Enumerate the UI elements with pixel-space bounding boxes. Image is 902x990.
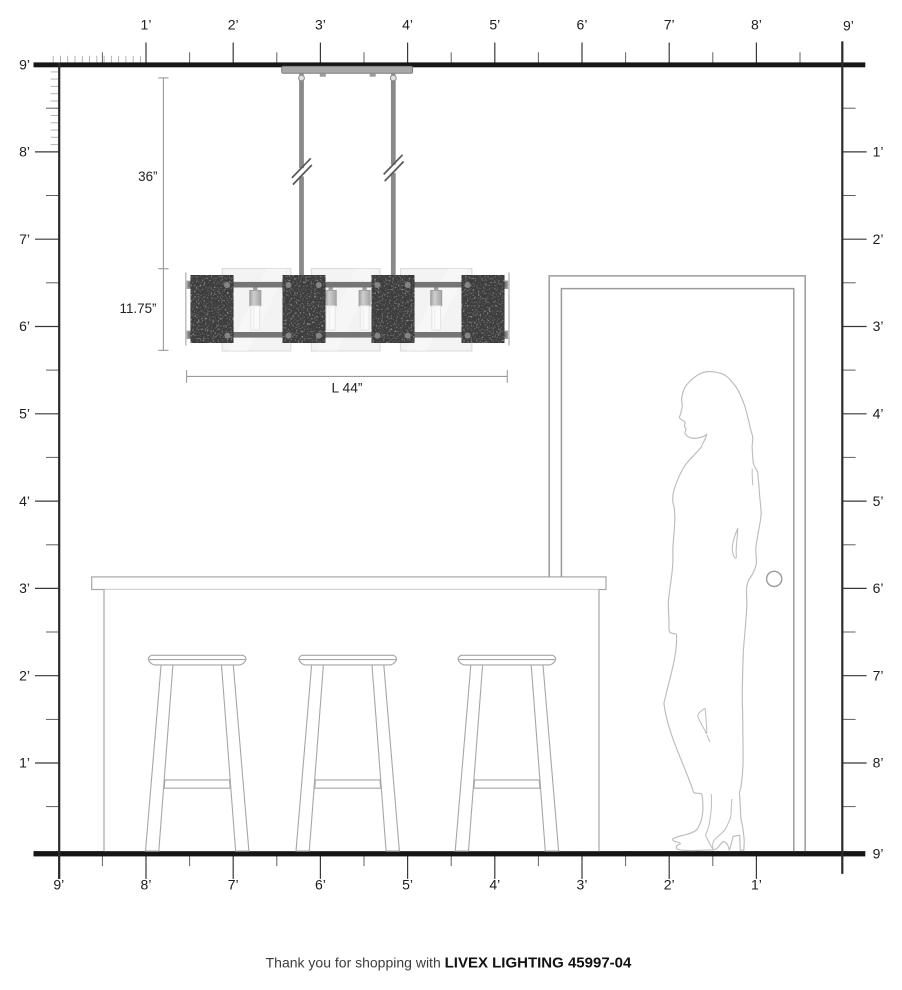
svg-text:3’: 3’ <box>873 318 884 334</box>
svg-text:2’: 2’ <box>228 17 239 33</box>
svg-text:4’: 4’ <box>19 493 30 509</box>
svg-text:4’: 4’ <box>489 877 500 893</box>
svg-text:7’: 7’ <box>19 231 30 247</box>
svg-text:1’: 1’ <box>751 877 762 893</box>
svg-text:8’: 8’ <box>751 17 762 33</box>
svg-text:9’: 9’ <box>19 56 30 72</box>
svg-text:5’: 5’ <box>873 493 884 509</box>
svg-text:3’: 3’ <box>315 17 326 33</box>
svg-text:9’: 9’ <box>843 18 854 34</box>
svg-text:5’: 5’ <box>489 17 500 33</box>
svg-text:1’: 1’ <box>19 755 30 771</box>
svg-text:Thank you for shopping with LI: Thank you for shopping with LIVEX LIGHTI… <box>266 955 632 972</box>
svg-text:3’: 3’ <box>577 877 588 893</box>
svg-text:8’: 8’ <box>141 877 152 893</box>
svg-text:5’: 5’ <box>19 406 30 422</box>
svg-text:4’: 4’ <box>873 406 884 422</box>
svg-text:8’: 8’ <box>19 144 30 160</box>
svg-text:L 44”: L 44” <box>332 380 363 395</box>
svg-text:4’: 4’ <box>402 17 413 33</box>
svg-text:11.75”: 11.75” <box>120 301 157 316</box>
svg-text:6’: 6’ <box>19 318 30 334</box>
svg-text:1’: 1’ <box>141 17 152 33</box>
svg-text:5’: 5’ <box>402 877 413 893</box>
svg-text:6’: 6’ <box>873 580 884 596</box>
svg-text:2’: 2’ <box>664 877 675 893</box>
svg-text:8’: 8’ <box>873 755 884 771</box>
svg-text:2’: 2’ <box>19 667 30 683</box>
svg-text:6’: 6’ <box>577 17 588 33</box>
svg-text:9’: 9’ <box>873 846 884 862</box>
svg-text:2’: 2’ <box>873 231 884 247</box>
svg-text:3’: 3’ <box>19 580 30 596</box>
svg-text:36”: 36” <box>138 169 157 184</box>
svg-text:7’: 7’ <box>873 667 884 683</box>
svg-text:1’: 1’ <box>873 144 884 160</box>
svg-text:9’: 9’ <box>53 877 64 893</box>
svg-text:6’: 6’ <box>315 877 326 893</box>
svg-text:7’: 7’ <box>228 877 239 893</box>
svg-text:7’: 7’ <box>664 17 675 33</box>
